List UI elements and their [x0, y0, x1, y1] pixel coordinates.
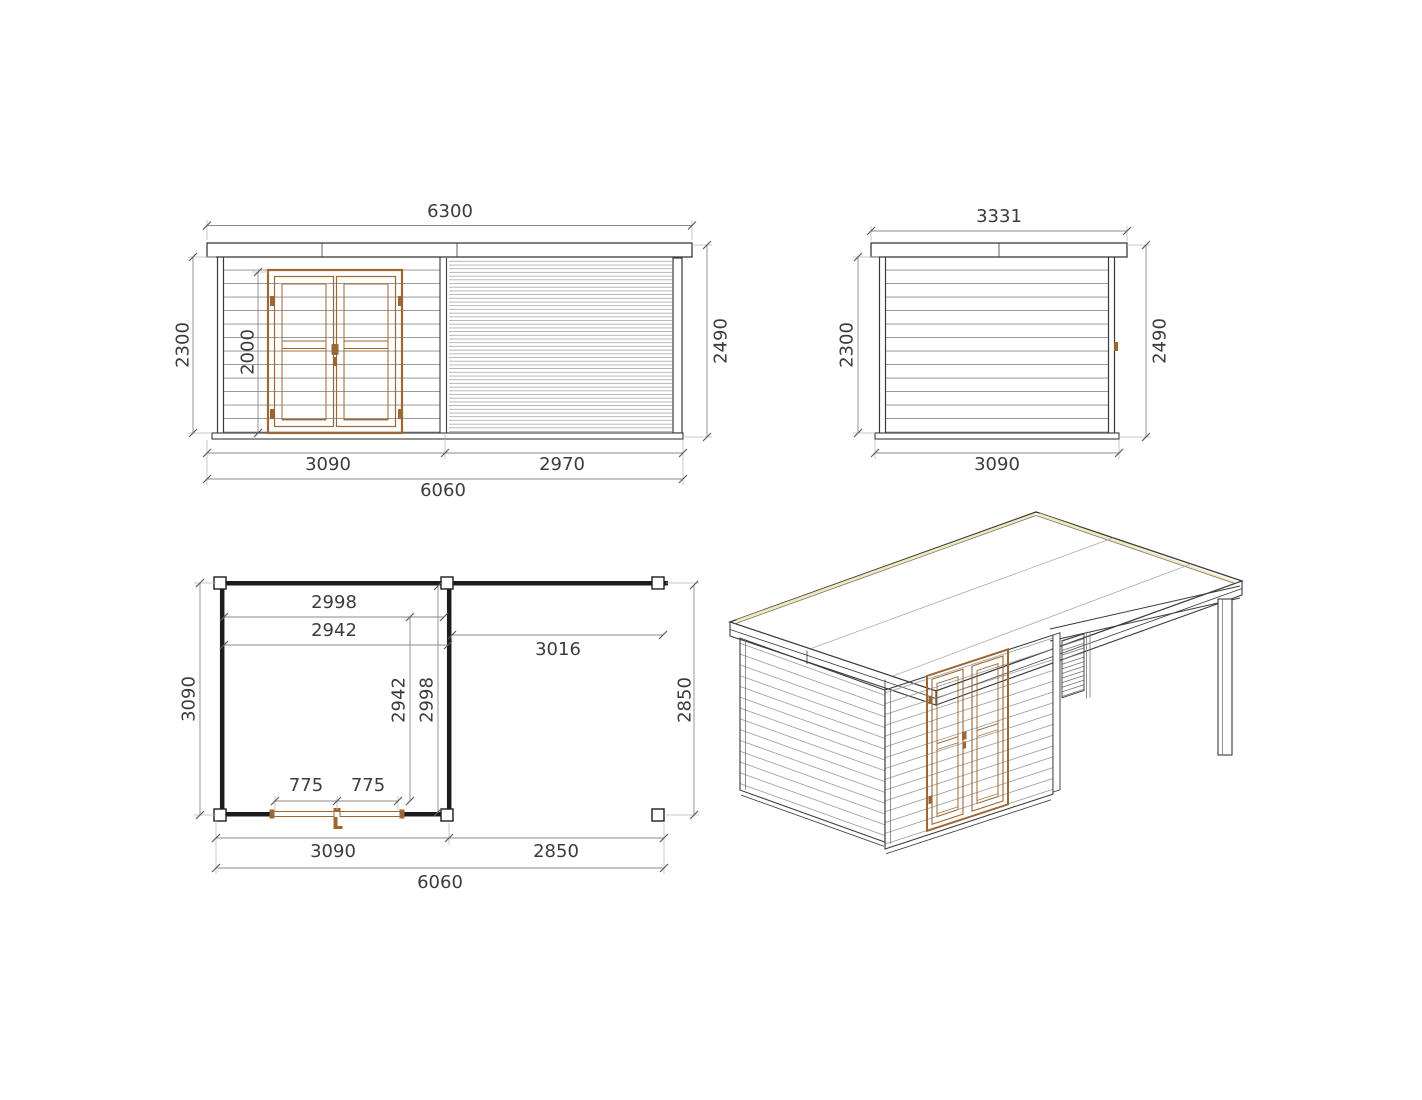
dim-label-plan-canopy-width: 2850 [533, 841, 579, 862]
dim-label-plan-door-left: 775 [289, 775, 323, 796]
technical-drawing-sheet: 6300 2300 2000 2490 [0, 0, 1422, 1100]
dim-label-plan-interior-width-b: 2942 [311, 620, 357, 641]
dim-label-front-cabin-width: 3090 [305, 454, 351, 475]
dim-label-plan-interior-depth-a: 2942 [388, 677, 409, 723]
dim-label-plan-interior-depth-b: 2998 [416, 677, 437, 723]
dim-label-side-roof-depth: 3331 [976, 206, 1022, 227]
front-roof [207, 243, 692, 257]
floor-plan-view: 3090 2998 2942 3016 2942 [178, 577, 699, 893]
dim-label-side-base-depth: 3090 [974, 454, 1020, 475]
front-canopy-post [673, 258, 682, 433]
front-elevation-view: 6300 2300 2000 2490 [172, 201, 731, 501]
dim-front-overall-height: 2490 [683, 241, 731, 441]
drawing-canvas: 6300 2300 2000 2490 [0, 0, 1422, 1100]
dim-label-front-total-width: 6060 [420, 480, 466, 501]
dim-front-bottom: 3090 2970 6060 [203, 434, 687, 501]
dim-label-plan-side-depth: 3090 [178, 676, 199, 722]
dim-label-front-canopy-width: 2970 [539, 454, 585, 475]
dim-plan-interior-width-a: 2998 [220, 592, 448, 621]
plan-post [441, 577, 453, 589]
iso-canopy-post [1218, 599, 1232, 755]
dim-side-roof-depth: 3331 [867, 206, 1131, 241]
dim-plan-canopy-span: 3016 [448, 631, 667, 660]
iso-door-handle [962, 731, 967, 740]
dim-plan-interior-width-b: 2942 [220, 620, 452, 649]
dim-side-overall-height: 2490 [1119, 241, 1170, 441]
dim-label-front-door-height: 2000 [237, 329, 258, 375]
perspective-view [730, 512, 1242, 854]
dim-label-plan-canopy-span: 3016 [535, 639, 581, 660]
side-elevation-view: 3331 2300 2490 3090 [836, 206, 1170, 475]
dim-label-plan-door-right: 775 [351, 775, 385, 796]
dim-label-front-wall-height: 2300 [172, 322, 193, 368]
dim-label-front-roof-width: 6300 [427, 201, 473, 222]
dim-label-plan-cabin-width: 3090 [310, 841, 356, 862]
side-base [875, 433, 1119, 439]
dim-label-side-wall-height: 2300 [836, 322, 857, 368]
dim-front-roof-width: 6300 [203, 201, 696, 240]
dim-plan-bottom: 3090 2850 6060 [212, 820, 668, 893]
dim-plan-canopy-depth: 2850 [666, 581, 699, 819]
door-handle [332, 344, 339, 355]
front-canopy-backwall [449, 258, 672, 433]
plan-post [441, 809, 453, 821]
side-siding [886, 257, 1108, 433]
dim-label-plan-canopy-depth: 2850 [674, 677, 695, 723]
dim-label-plan-total-width: 6060 [417, 872, 463, 893]
side-door-handle-mark [1114, 342, 1118, 351]
door-hinge [270, 296, 274, 306]
plan-post [652, 577, 664, 589]
plan-post [652, 809, 664, 821]
dim-side-base-depth: 3090 [871, 440, 1123, 475]
dim-label-front-overall-height: 2490 [710, 318, 731, 364]
plan-door [270, 808, 405, 829]
dim-side-wall-height: 2300 [836, 253, 879, 437]
dim-front-wall-height: 2300 [172, 253, 216, 437]
dim-label-side-overall-height: 2490 [1149, 318, 1170, 364]
dim-plan-side-depth: 3090 [178, 579, 216, 819]
dim-label-plan-interior-width-a: 2998 [311, 592, 357, 613]
dim-plan-door-leaves: 775 775 [271, 775, 402, 810]
